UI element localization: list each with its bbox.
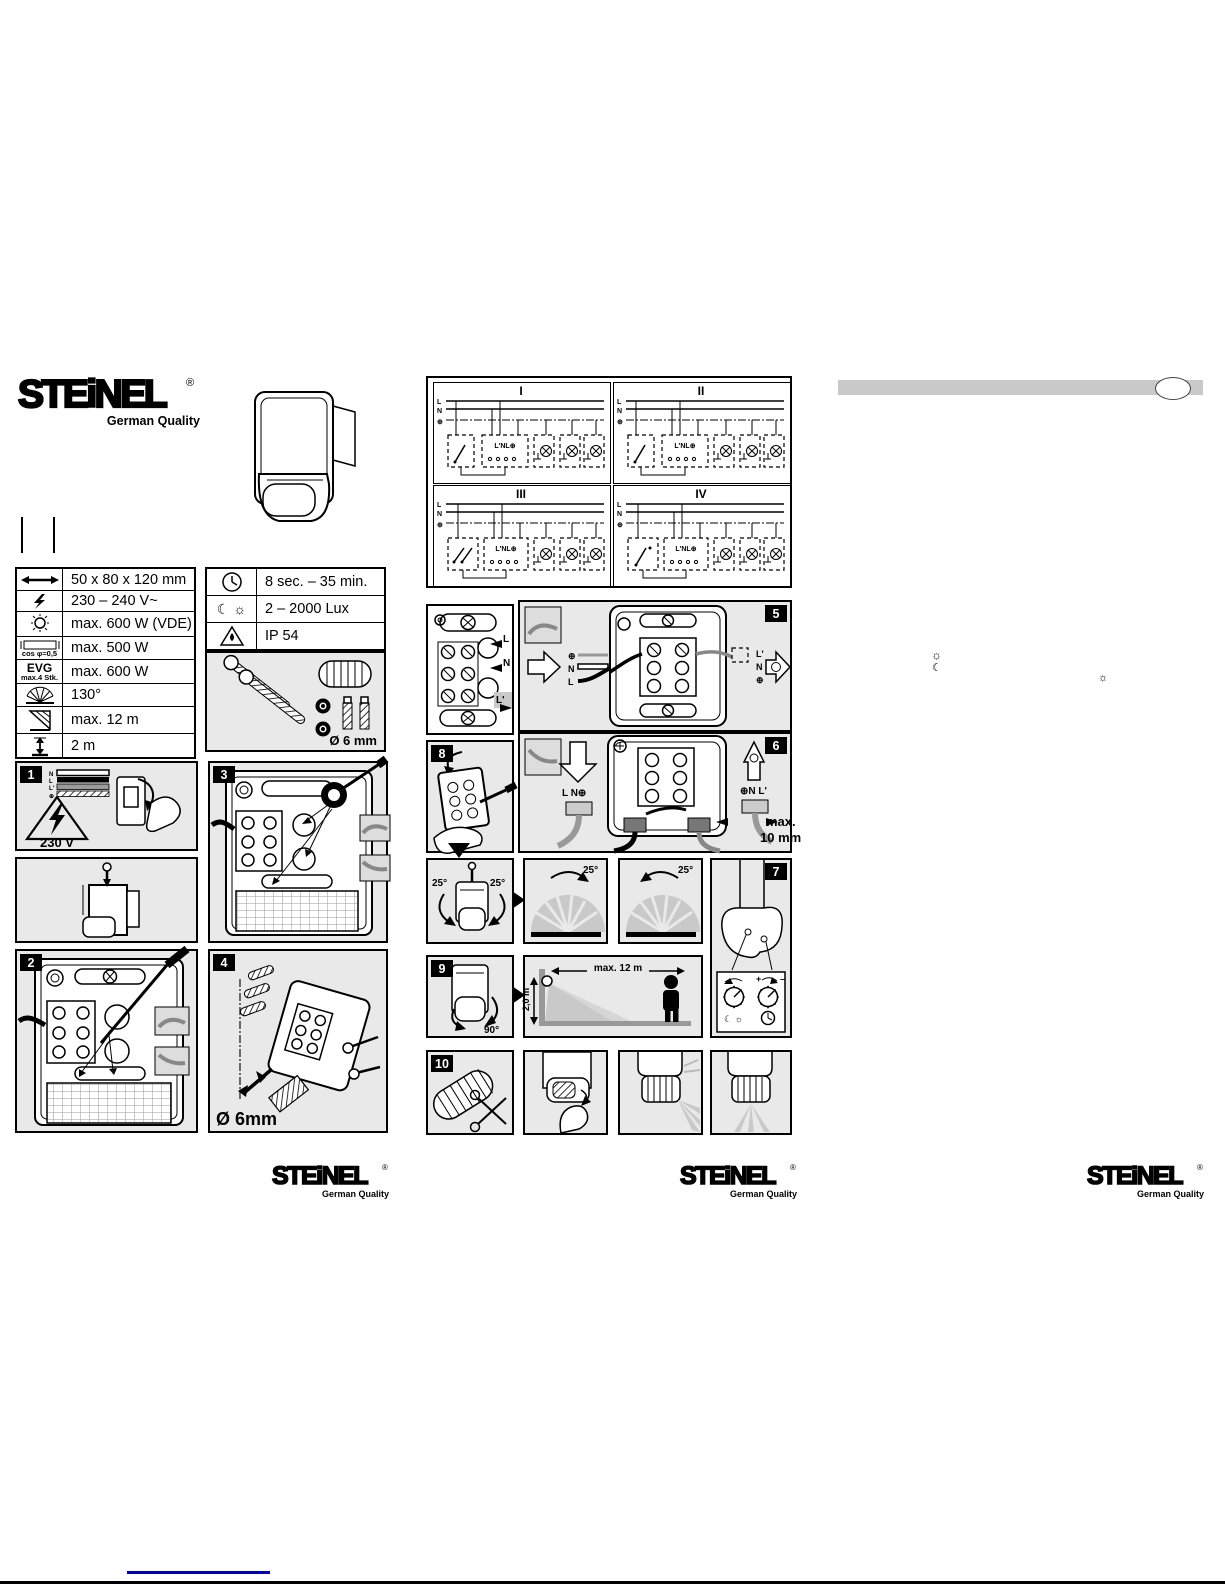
reach-icon — [17, 706, 63, 733]
sensor-open-back — [226, 771, 372, 935]
max-value-label: 10 mm — [760, 830, 801, 845]
sweep-left-panel: 25° — [618, 858, 703, 944]
spec-incandescent-value: max. 600 W (VDE) — [63, 611, 194, 636]
cable-clamp — [742, 800, 768, 813]
brand-logo-footer-middle: STEiNEL ® German Quality — [680, 1158, 802, 1202]
ip-warning-icon — [207, 622, 257, 649]
wiring-diagram-III: III LN⊕ L'NL⊕ — [433, 485, 611, 587]
concealed-wiring-inset — [525, 607, 561, 643]
svg-text:L: L — [568, 677, 574, 687]
sensor-bracket — [728, 1052, 772, 1076]
moon-sun-icon: ☾ ☼ — [207, 595, 257, 622]
arrow-down-icon — [448, 843, 470, 858]
spec-ip-value: IP 54 — [257, 622, 384, 649]
shroud-piece — [553, 1082, 575, 1098]
sensor-front-drawing — [452, 965, 488, 1021]
screwdriver-icon — [103, 863, 111, 887]
svg-text:N: N — [437, 408, 442, 415]
full-beams-panel — [710, 1050, 792, 1135]
switch-box — [448, 538, 478, 570]
mark-right — [53, 517, 55, 553]
step-10-panel: 10 — [426, 1050, 514, 1135]
svg-text:L': L' — [756, 649, 764, 659]
svg-text:N: N — [617, 408, 622, 415]
brand-tagline: German Quality — [1137, 1189, 1204, 1199]
svg-text:L: L — [617, 399, 622, 406]
svg-text:⊕: ⊕ — [437, 522, 443, 529]
svg-text:N: N — [568, 664, 575, 674]
registered-icon: ® — [186, 377, 194, 389]
svg-text:N: N — [756, 662, 763, 672]
sensor-box — [664, 538, 708, 570]
max-label: max. — [766, 814, 796, 829]
svg-text:⊕: ⊕ — [756, 675, 764, 685]
moon-icon: ☾ — [932, 661, 942, 674]
lamp-box — [740, 538, 760, 570]
step-8-panel: 8 — [426, 740, 514, 853]
cable-clamp — [566, 802, 592, 815]
brand-wordmark: STEiNEL — [680, 1162, 776, 1190]
wire-color-legend — [57, 770, 109, 797]
load-up-arrow-icon — [744, 742, 764, 780]
registered-icon: ® — [790, 1163, 796, 1172]
rotation-angle-label: 90° — [484, 1025, 499, 1036]
step-number-badge: 1 — [20, 766, 42, 783]
step-number-badge: 7 — [765, 863, 787, 880]
sensor-bracket — [638, 1052, 682, 1076]
step-4-panel: 4 Ø 6mm — [208, 949, 388, 1133]
lamp-box — [534, 538, 554, 570]
drill-icon — [238, 1069, 308, 1112]
step-1-panel: 1 N L L' ⊕ 230 V — [15, 761, 198, 851]
sweep-right-panel: 25° — [523, 858, 608, 944]
svg-text:L'NL⊕: L'NL⊕ — [674, 443, 695, 450]
sensor-box — [482, 435, 528, 467]
masked-beams-panel — [618, 1050, 703, 1135]
voltage-lightning-icon — [17, 590, 63, 611]
sensor-box — [662, 435, 708, 467]
brand-wordmark: STEiNEL — [272, 1162, 368, 1190]
footer-link-underline[interactable] — [127, 1571, 270, 1574]
supply-down-arrow-icon — [560, 742, 596, 782]
step-number-badge: 5 — [765, 605, 787, 622]
svg-text:N: N — [617, 511, 622, 518]
terminal-n-label: N — [503, 658, 510, 669]
wiring-diagram-II: II LN⊕ L'NL⊕ — [613, 382, 791, 484]
sensor-box — [484, 538, 528, 570]
person-silhouette — [663, 975, 679, 1022]
sensor-open-back — [35, 959, 183, 1125]
svg-text:⊕: ⊕ — [617, 419, 623, 426]
svg-text:L: L — [437, 399, 442, 406]
clock-icon — [207, 569, 257, 595]
sensor-open-back — [610, 606, 732, 726]
concealed-wiring-inset — [360, 815, 390, 841]
apply-shroud-panel — [523, 1050, 608, 1135]
brand-logo-top: STEiNEL ® German Quality — [18, 372, 208, 432]
wall-plug-icon — [247, 964, 274, 980]
registered-icon: ® — [382, 1163, 388, 1172]
wall-plug-icon — [343, 697, 352, 729]
step-number-badge: 8 — [431, 745, 453, 762]
finger-drawing — [560, 1106, 588, 1133]
svg-text:L: L — [49, 779, 53, 785]
angle-left-label: 25° — [432, 878, 447, 889]
surface-wiring-inset — [155, 1047, 189, 1075]
registered-icon: ® — [1197, 1163, 1203, 1172]
lamp-box — [534, 435, 554, 467]
hardware-panel: Ø 6 mm — [205, 651, 386, 752]
svg-text:L'NL⊕: L'NL⊕ — [494, 443, 515, 450]
angle-right-label: 25° — [490, 878, 505, 889]
screw-icon — [349, 1067, 380, 1079]
step-9-panel: 9 90° — [426, 955, 514, 1038]
svg-text:L: L — [617, 502, 622, 509]
sweep-angle-label: 25° — [678, 865, 693, 876]
screwdriver-icon — [469, 863, 476, 883]
range-panel: max. 12 m 2,0 m — [523, 955, 703, 1038]
brand-tagline: German Quality — [107, 414, 200, 428]
spec-voltage-value: 230 – 240 V~ — [63, 590, 194, 611]
svg-text:⊕: ⊕ — [617, 522, 623, 529]
high-voltage-warning-icon — [27, 797, 87, 839]
surface-wiring-inset — [525, 739, 561, 775]
load-wires-label: ⊕N L' — [740, 786, 767, 797]
sensor-back-drawing — [438, 767, 490, 831]
step-number-badge: 9 — [431, 960, 453, 977]
step-number-badge: 3 — [213, 766, 235, 783]
range-horizontal-label: max. 12 m — [594, 963, 642, 974]
sensor-front-drawing — [456, 882, 488, 930]
terminal-l-label: L — [503, 634, 509, 645]
detection-fan-icon — [17, 683, 63, 706]
drill-diameter-label: Ø 6mm — [216, 1109, 277, 1129]
svg-text:⊕: ⊕ — [568, 651, 576, 661]
supply-wires-label: L N⊕ — [562, 788, 586, 799]
dusk-icons-label: ☾ ☼ — [724, 1014, 743, 1024]
step-number-badge: 10 — [431, 1055, 453, 1072]
step-6-panel: 6 L N⊕ ⊕N L' max. 10 mm — [518, 732, 792, 853]
product-drawing — [243, 388, 365, 536]
cos-phi-label: cos φ=0,5 — [22, 650, 57, 657]
sun-icon: ☼ — [931, 648, 942, 662]
step-3-panel: 3 — [208, 761, 388, 943]
lamp-box — [740, 435, 760, 467]
moon-icon: ☾ — [217, 601, 230, 618]
lamp-box — [560, 538, 580, 570]
svg-text:+: + — [756, 974, 761, 984]
spec-dimensions-value: 50 x 80 x 120 mm — [63, 569, 194, 590]
spec-fluorescent-value: max. 500 W — [63, 636, 194, 659]
spec-reach-value: max. 12 m — [63, 706, 194, 733]
lamp-box — [764, 538, 784, 570]
sun-icon: ☼ — [233, 601, 246, 617]
svg-text:IV: IV — [695, 487, 706, 501]
sun-icon: ☼ — [1098, 672, 1108, 684]
spec-angle-value: 130° — [63, 683, 194, 706]
wall-plug-icon — [360, 697, 369, 729]
lens-grid — [236, 891, 358, 931]
fluorescent-tube-icon: cos φ=0,5 — [17, 636, 63, 659]
svg-text:I: I — [519, 384, 522, 398]
wiring-diagrams-panel: I LN⊕ L'NL⊕ II LN⊕ L'NL⊕ — [426, 376, 792, 588]
page-bottom-rule — [0, 1581, 1225, 1584]
svg-text:L: L — [437, 502, 442, 509]
step-number-badge: 2 — [20, 954, 42, 971]
svg-text:L'NL⊕: L'NL⊕ — [675, 546, 696, 553]
spec-height-value: 2 m — [63, 733, 194, 757]
sensor-open-back — [608, 736, 726, 851]
brand-tagline: German Quality — [322, 1189, 389, 1199]
svg-text:⊕: ⊕ — [437, 419, 443, 426]
step-number-badge: 4 — [213, 954, 235, 971]
mounting-height-icon — [17, 733, 63, 757]
sensor-side-view — [83, 885, 139, 937]
wall-plug-icon — [243, 982, 270, 998]
step-1b-panel — [15, 857, 198, 943]
surface-wiring-inset — [360, 855, 390, 881]
evg-icon: EVG max.4 Stk. — [17, 659, 63, 683]
svg-text:⊕: ⊕ — [49, 794, 54, 800]
concealed-wiring-inset — [155, 1007, 189, 1035]
lamp-box — [764, 435, 784, 467]
header-oval — [1155, 377, 1191, 400]
spec-table-settings: 8 sec. – 35 min. ☾ ☼ 2 – 2000 Lux IP 54 — [205, 567, 386, 651]
step-2-panel: 2 — [15, 949, 198, 1133]
cable-grommet-icon — [321, 782, 347, 808]
wiring-diagram-I: I LN⊕ L'NL⊕ — [433, 382, 611, 484]
svg-text:L': L' — [49, 786, 55, 792]
brand-wordmark: STEiNEL — [1087, 1162, 1183, 1190]
svg-text:L'NL⊕: L'NL⊕ — [495, 546, 516, 553]
step-5-panel: 5 ⊕ N L L' N ⊕ — [518, 600, 792, 732]
spec-time-value: 8 sec. – 35 min. — [257, 569, 384, 595]
evg-sublabel: max.4 Stk. — [21, 674, 58, 681]
svg-text:–: – — [780, 974, 785, 984]
spec-evg-value: max. 600 W — [63, 659, 194, 683]
section-header-bar — [838, 380, 1203, 395]
step-7-panel: 7 ☾ ☼ + – — [710, 858, 792, 1038]
lamp-box — [560, 435, 580, 467]
light-switch-drawing — [117, 777, 180, 831]
svg-text:N: N — [49, 772, 53, 778]
sensor-dot — [542, 976, 552, 986]
load-arrow-icon — [766, 652, 790, 682]
lamp-box — [584, 435, 604, 467]
dimensions-arrow-icon — [17, 569, 63, 590]
brand-tagline: German Quality — [730, 1189, 797, 1199]
wiring-diagram-IV: IV LN⊕ L'NL⊕ — [613, 485, 791, 587]
sweep-angle-label: 25° — [583, 865, 598, 876]
voltage-label: 230 V — [40, 835, 74, 850]
wall-plug-icon — [239, 1000, 266, 1016]
lamp-box — [584, 538, 604, 570]
svg-text:III: III — [516, 487, 526, 501]
manual-page: STEiNEL ® German Quality 50 x 80 x 120 m… — [0, 0, 1225, 1585]
diameter-label: Ø 6 mm — [329, 733, 377, 748]
spec-table-dimensions: 50 x 80 x 120 mm 230 – 240 V~ max. 600 W… — [15, 567, 196, 759]
svg-text:N: N — [437, 511, 442, 518]
brand-logo-footer-right: STEiNEL ® German Quality — [1087, 1158, 1209, 1202]
svg-text:II: II — [698, 384, 705, 398]
terminal-block-panel: L N L' — [426, 604, 514, 735]
hand-drawing — [147, 797, 181, 831]
range-vertical-label: 2,0 m — [521, 988, 531, 1011]
mark-left — [21, 517, 23, 553]
rotation-panel: 25° 25° — [426, 858, 514, 944]
brand-logo-footer-left: STEiNEL ® German Quality — [272, 1158, 394, 1202]
step-number-badge: 6 — [765, 737, 787, 754]
spec-lux-value: 2 – 2000 Lux — [257, 595, 384, 622]
brand-wordmark: STEiNEL — [18, 373, 167, 416]
screw-icon — [236, 667, 308, 727]
lamp-box — [714, 435, 734, 467]
lamp-box — [714, 538, 734, 570]
supply-arrow-icon — [528, 652, 560, 682]
bulb-icon — [17, 611, 63, 636]
lens-grid — [47, 1083, 171, 1123]
